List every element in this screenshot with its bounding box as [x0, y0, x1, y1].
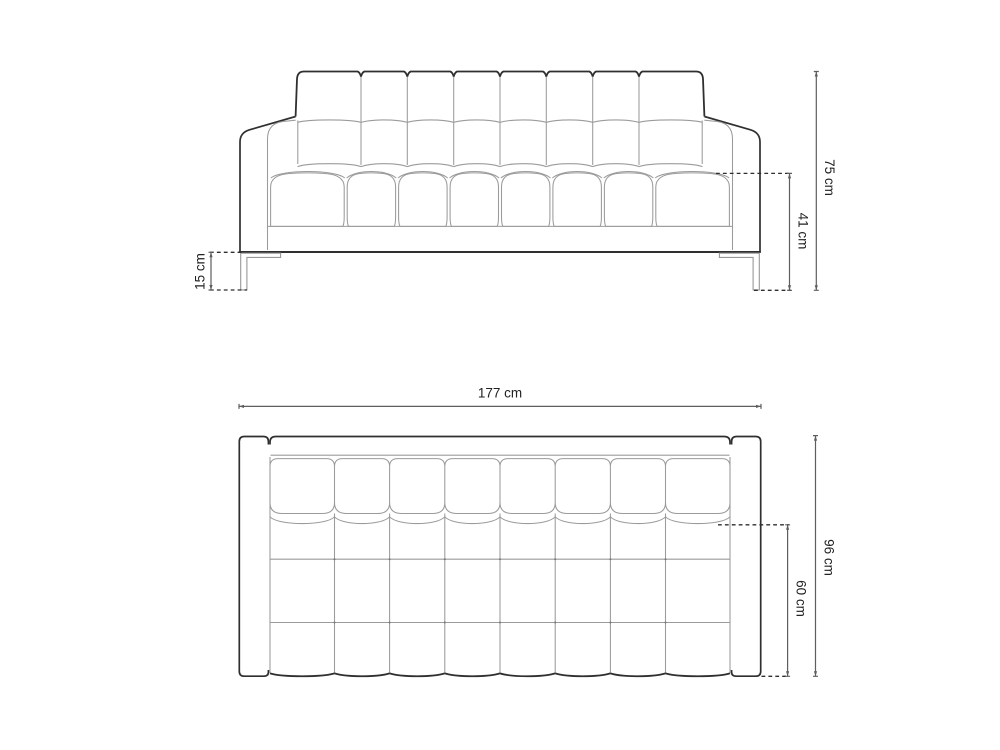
svg-text:96 cm: 96 cm — [822, 539, 837, 576]
svg-text:60 cm: 60 cm — [794, 580, 809, 617]
svg-text:177 cm: 177 cm — [478, 385, 522, 400]
svg-text:41 cm: 41 cm — [796, 213, 811, 250]
svg-text:15 cm: 15 cm — [192, 253, 207, 290]
svg-text:75 cm: 75 cm — [822, 159, 837, 196]
